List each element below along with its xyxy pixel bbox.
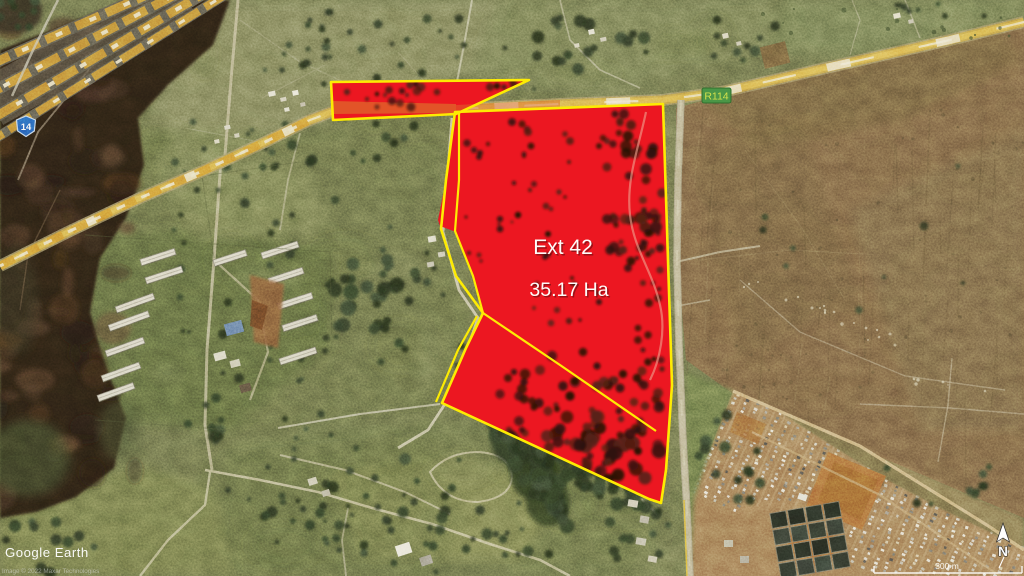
- svg-text:Image © 2022 Maxar Technologie: Image © 2022 Maxar Technologies: [2, 567, 99, 575]
- svg-text:N: N: [998, 544, 1008, 559]
- svg-text:Google Earth: Google Earth: [5, 545, 89, 560]
- svg-text:300 m: 300 m: [935, 561, 959, 571]
